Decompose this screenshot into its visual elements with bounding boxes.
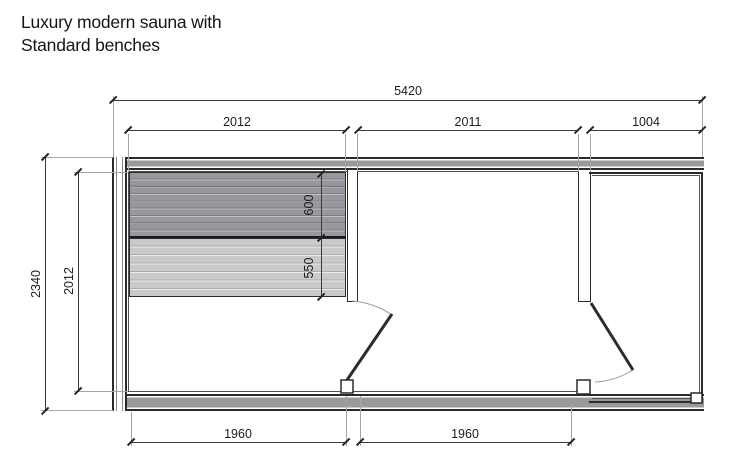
wall-left <box>112 157 127 411</box>
dimension-tick <box>574 126 582 134</box>
dimension-label-segment-left: 2012 <box>207 115 267 129</box>
extension-line <box>113 96 114 157</box>
door-jamb-2 <box>577 380 590 394</box>
extension-line <box>590 134 591 172</box>
dimension-label-overall-depth: 2340 <box>29 254 43 314</box>
extension-line <box>128 134 129 172</box>
dimension-line-segment-left <box>128 130 346 131</box>
dimension-label-interior-depth: 2012 <box>62 251 76 311</box>
right-room-wall-right <box>701 172 703 403</box>
door-leaf-1 <box>347 314 392 380</box>
dimension-label-upper-bench: 600 <box>302 175 316 235</box>
sauna-floor-plan: Luxury modern sauna with Standard benche… <box>0 0 737 471</box>
drawing-title: Luxury modern sauna with Standard benche… <box>21 11 221 57</box>
dimension-line-bottom-right <box>360 442 571 443</box>
dimension-label-bottom-right: 1960 <box>435 427 495 441</box>
room-liner-bottom <box>128 391 578 392</box>
right-room-wall-top <box>589 172 703 174</box>
dimension-label-segment-middle: 2011 <box>438 115 498 129</box>
title-line-1: Luxury modern sauna with <box>21 11 221 34</box>
extension-line <box>41 410 113 411</box>
dimension-label-segment-right: 1004 <box>616 115 676 129</box>
dimension-line-interior-depth <box>78 172 79 391</box>
extension-line <box>41 157 113 158</box>
extension-line <box>345 134 346 172</box>
dimension-line-overall-width <box>113 100 702 101</box>
dimension-label-bottom-left: 1960 <box>208 427 268 441</box>
title-line-2: Standard benches <box>21 34 221 57</box>
dimension-line-bottom-left <box>131 442 346 443</box>
wall-top <box>112 157 704 170</box>
dimension-line-segment-middle <box>358 130 578 131</box>
extension-line <box>74 391 128 392</box>
door-swing-arc-1 <box>352 301 392 315</box>
dimension-line-segment-right <box>590 130 702 131</box>
right-room-liner <box>592 175 700 399</box>
partition-sauna-middle <box>347 169 358 302</box>
dimension-line-overall-depth <box>45 157 46 411</box>
partition-middle-right <box>578 169 591 302</box>
extension-line <box>357 134 358 172</box>
dimension-tick <box>342 126 350 134</box>
right-room-wall-bottom <box>589 401 703 403</box>
dimension-label-lower-bench: 550 <box>302 238 316 298</box>
extension-line <box>74 172 128 173</box>
dimension-label-overall-width: 5420 <box>378 84 438 98</box>
extension-line <box>578 134 579 172</box>
